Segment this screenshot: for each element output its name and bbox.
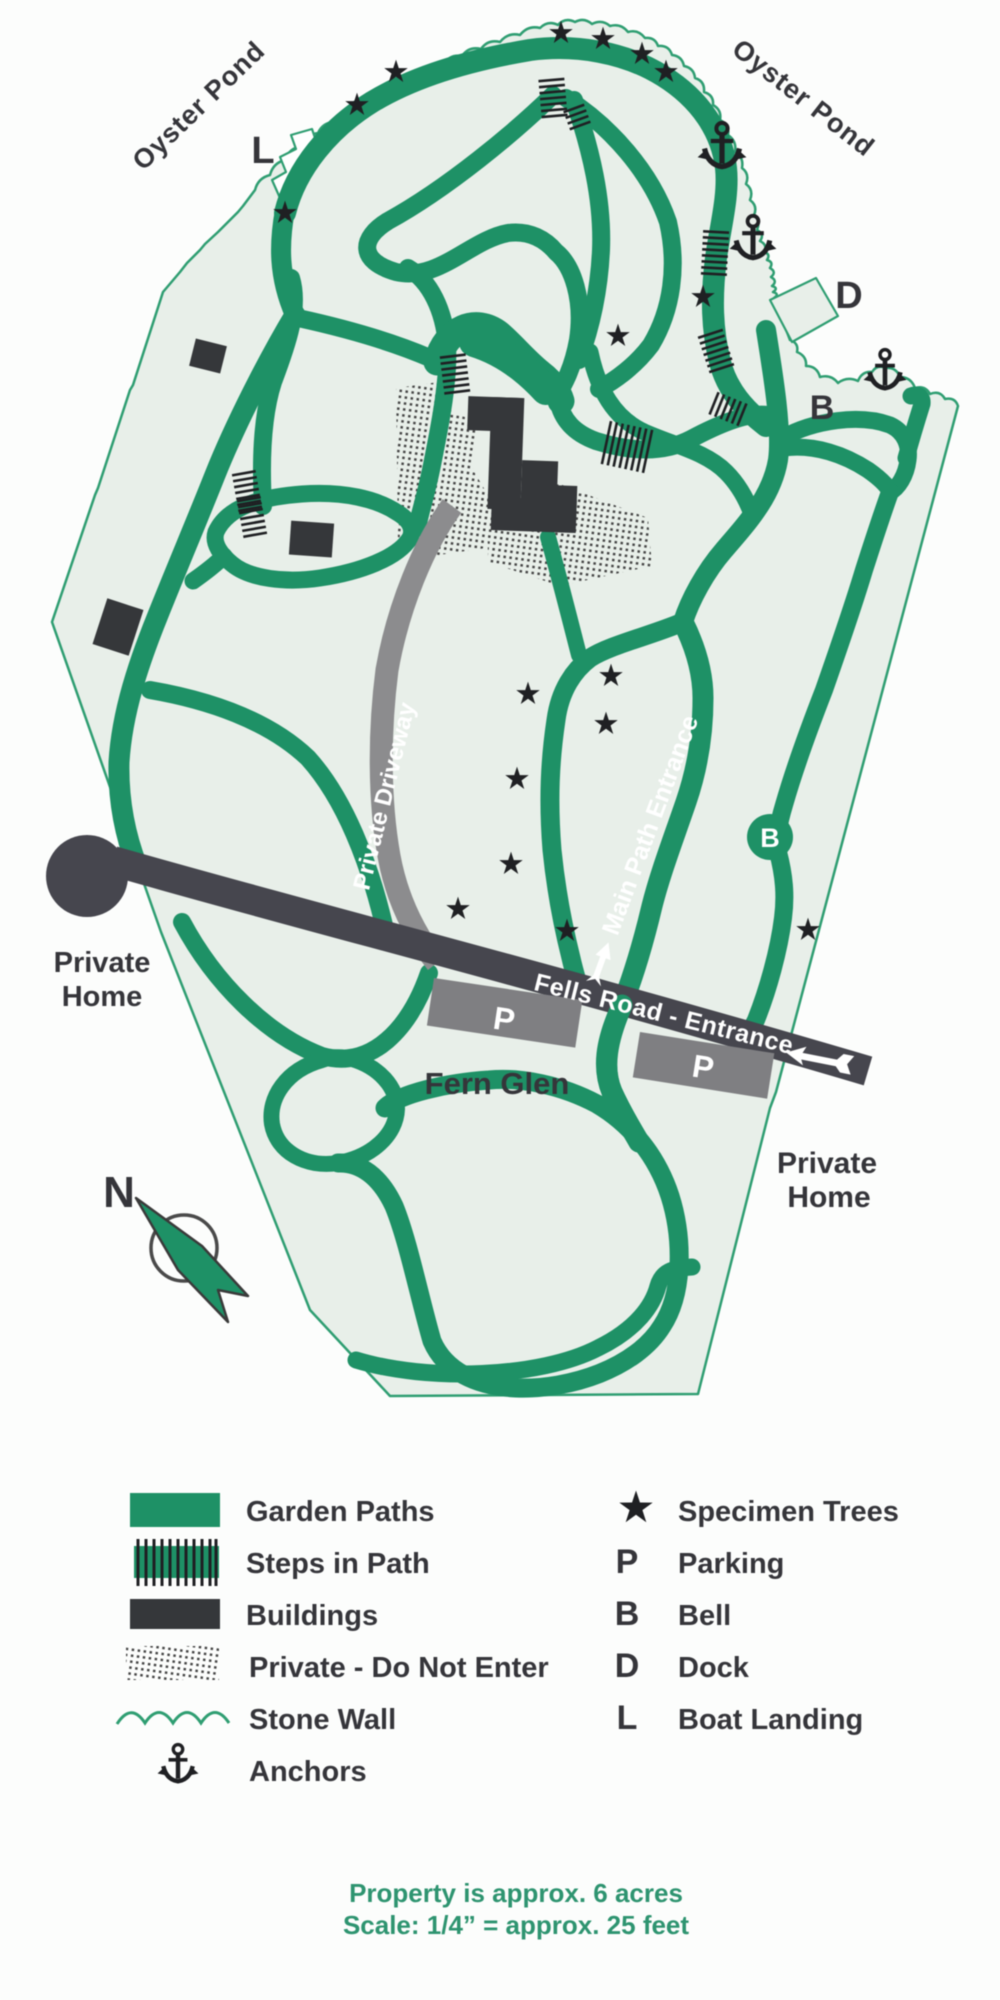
svg-text:Home: Home: [62, 981, 143, 1013]
svg-text:Private: Private: [54, 947, 151, 979]
svg-text:Private: Private: [777, 1147, 877, 1180]
svg-text:L: L: [617, 1699, 638, 1737]
svg-text:Anchors: Anchors: [249, 1756, 367, 1788]
svg-text:Private - Do Not Enter: Private - Do Not Enter: [249, 1652, 549, 1684]
svg-text:Fern Glen: Fern Glen: [425, 1066, 570, 1101]
svg-text:Dock: Dock: [678, 1652, 750, 1684]
svg-text:Steps in Path: Steps in Path: [246, 1548, 430, 1580]
svg-text:B: B: [760, 823, 780, 853]
svg-text:Garden Paths: Garden Paths: [246, 1496, 435, 1528]
svg-text:Boat Landing: Boat Landing: [678, 1704, 863, 1736]
svg-text:P: P: [616, 1543, 639, 1581]
svg-text:Scale: 1/4” = approx. 25 feet: Scale: 1/4” = approx. 25 feet: [343, 1910, 689, 1940]
svg-text:Bell: Bell: [678, 1600, 731, 1632]
svg-text:Home: Home: [787, 1181, 870, 1214]
svg-text:Specimen Trees: Specimen Trees: [678, 1496, 899, 1528]
svg-text:Parking: Parking: [678, 1548, 784, 1580]
svg-text:D: D: [835, 275, 862, 317]
svg-text:L: L: [251, 130, 274, 172]
svg-text:B: B: [615, 1595, 640, 1633]
svg-text:Stone Wall: Stone Wall: [249, 1704, 396, 1736]
svg-text:N: N: [103, 1168, 135, 1217]
svg-text:Buildings: Buildings: [246, 1600, 378, 1632]
svg-text:B: B: [810, 389, 835, 427]
svg-text:Property is approx. 6 acres: Property is approx. 6 acres: [349, 1878, 683, 1908]
svg-text:D: D: [615, 1647, 640, 1685]
